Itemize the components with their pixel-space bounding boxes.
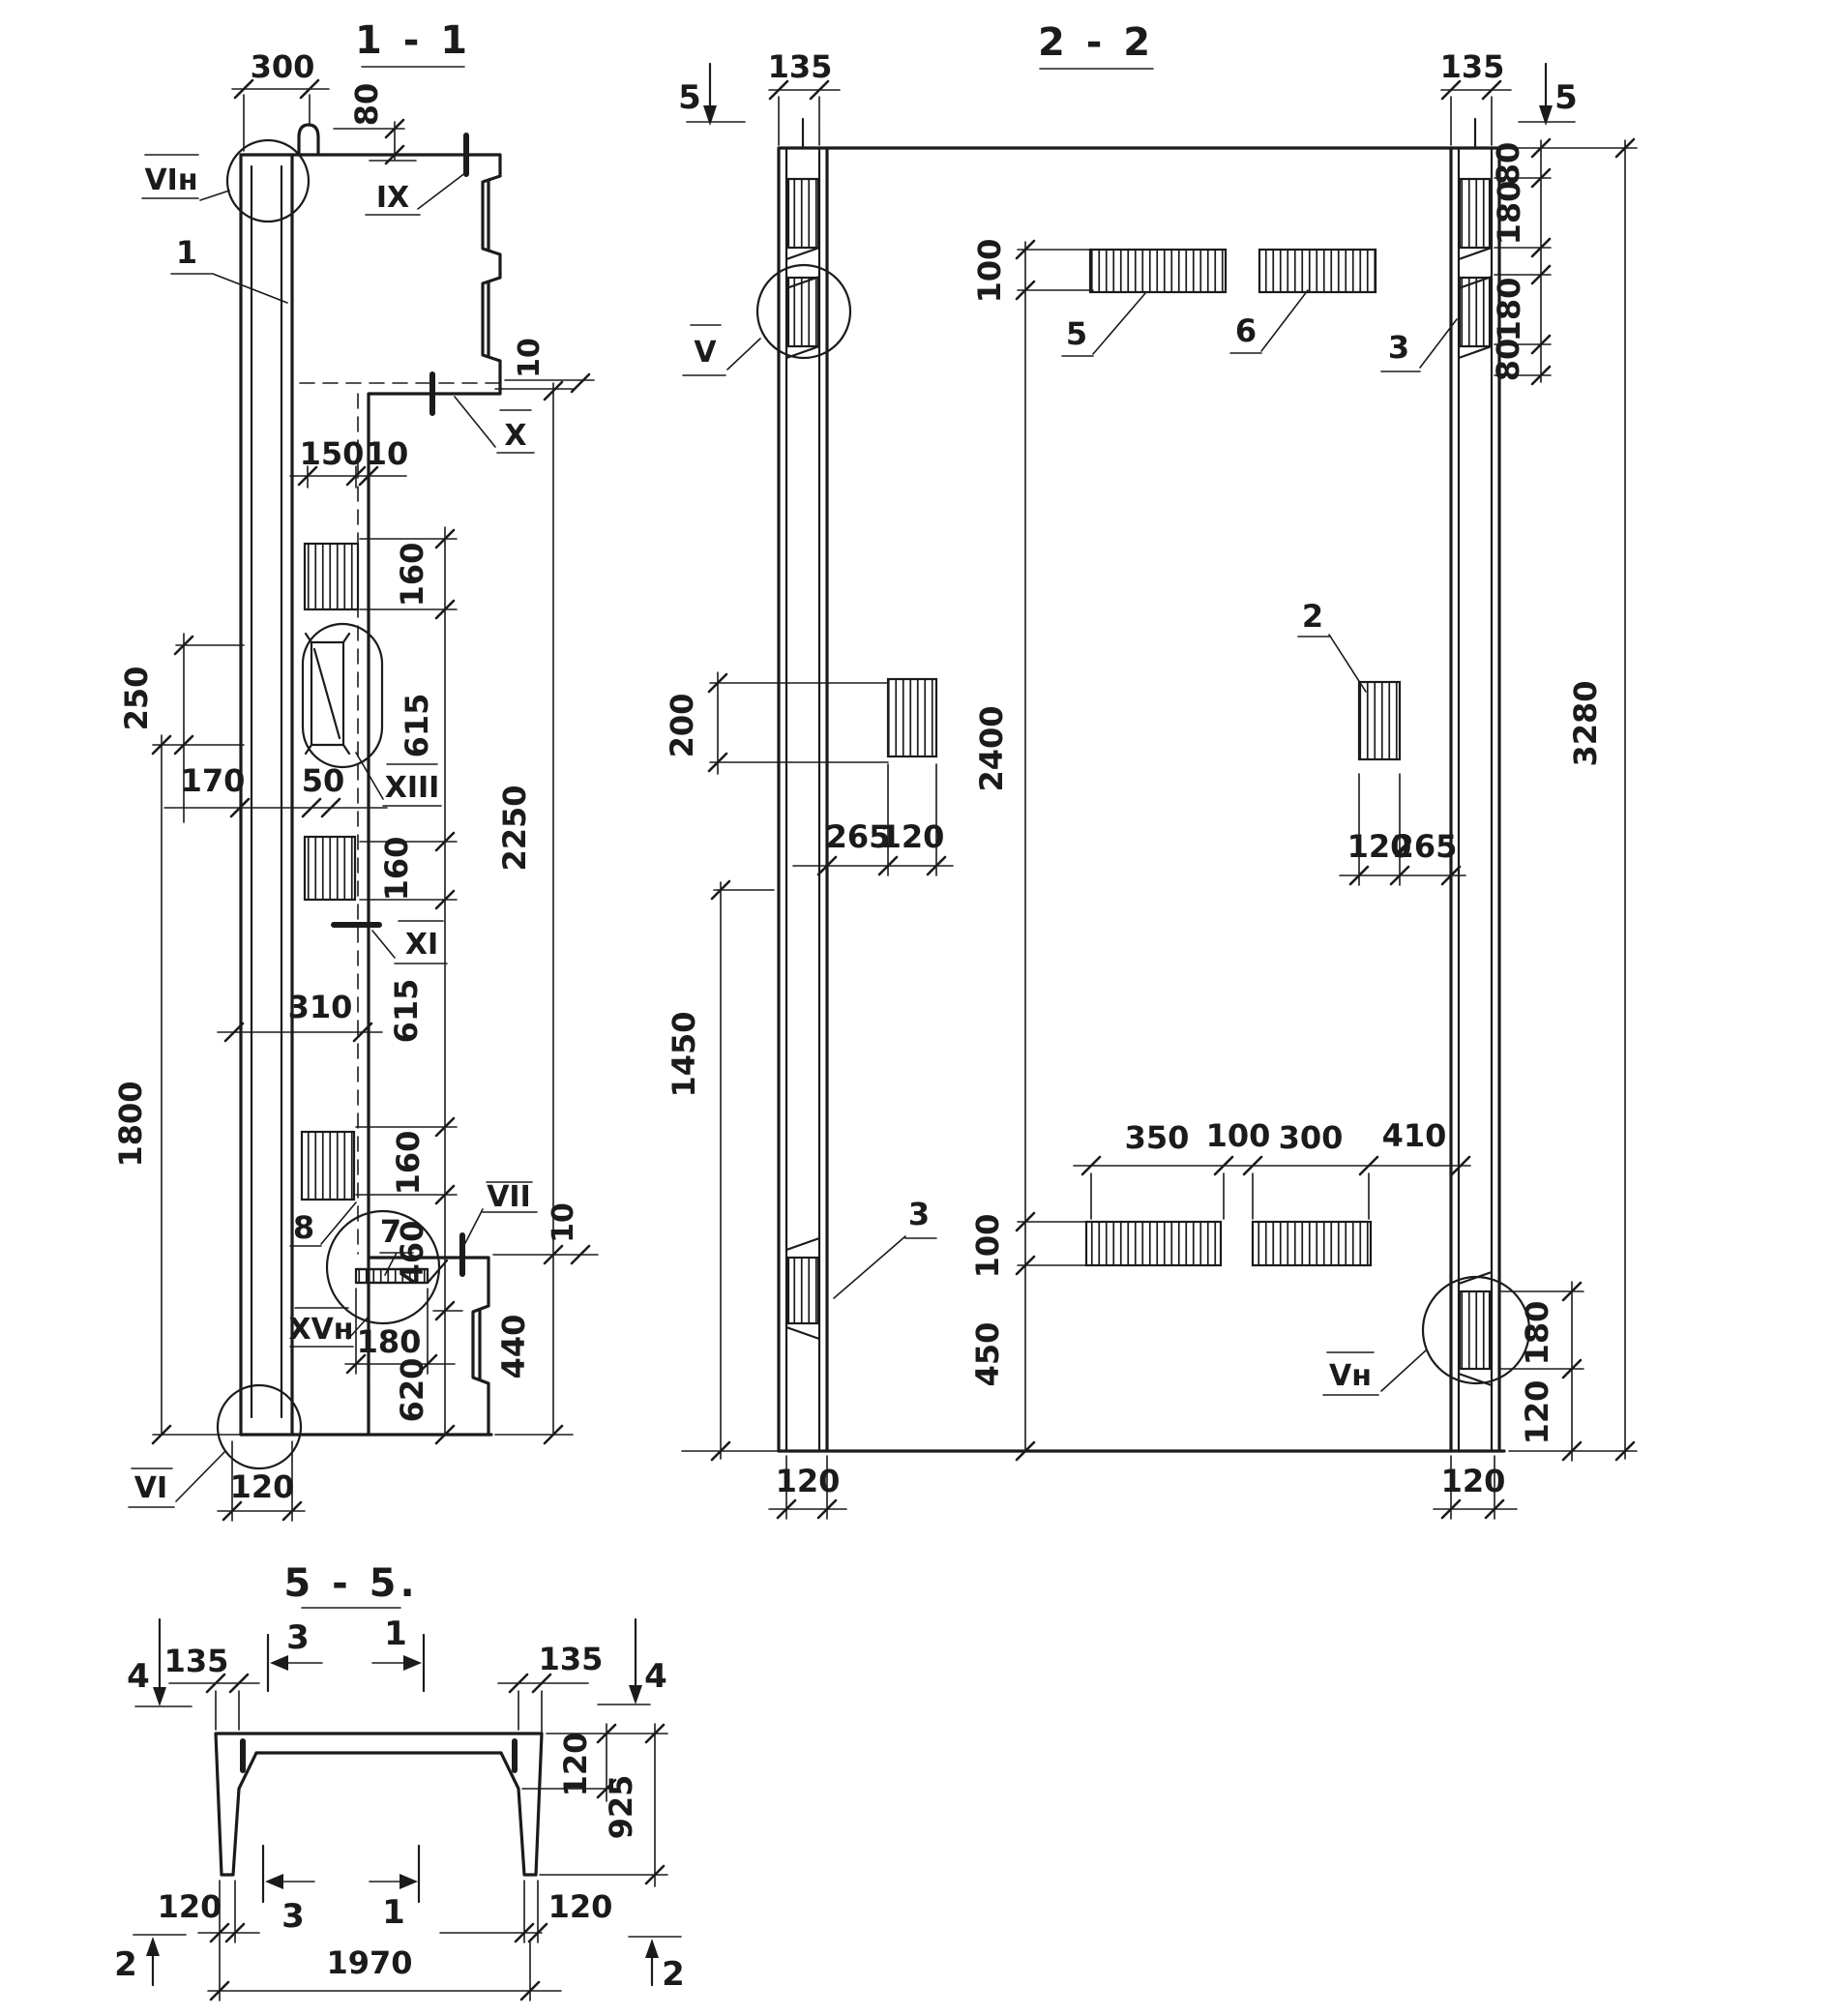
section-2-2: 2 - 2 5 5 135 135 100 80 180 180 80 3280… xyxy=(664,20,1637,1519)
cut-marker-3-bot: 3 xyxy=(281,1897,305,1936)
dim-80a: 80 xyxy=(1490,142,1526,186)
label-XI: XI xyxy=(405,928,438,962)
cut-marker-5-right: 5 xyxy=(1554,78,1578,117)
section-title: 2 - 2 xyxy=(1038,20,1154,65)
dim-200: 200 xyxy=(664,694,700,758)
dim-925: 925 xyxy=(603,1775,639,1840)
dim-160c: 160 xyxy=(390,1131,427,1196)
dim-3280: 3280 xyxy=(1567,680,1604,766)
cut-marker-4-right: 4 xyxy=(644,1657,667,1696)
hatch-rib xyxy=(788,278,818,346)
label-6: 6 xyxy=(1235,312,1257,349)
label-2: 2 xyxy=(1302,598,1323,635)
dim-350: 350 xyxy=(1125,1119,1190,1156)
dim-120-bot-left: 120 xyxy=(158,1888,222,1925)
arrow-right-1t xyxy=(403,1655,422,1671)
section-5-5: 5 - 5. 4 4 135 135 3 1 120 925 3 1 120 1… xyxy=(114,1561,685,2001)
dim-410: 410 xyxy=(1382,1117,1447,1154)
hatch-rib xyxy=(302,1132,354,1200)
detail-circle-VI xyxy=(218,1385,301,1468)
dim-450: 450 xyxy=(969,1322,1006,1387)
label-V: V xyxy=(694,336,717,370)
dim-100-top: 100 xyxy=(971,239,1008,304)
label-3-left: 3 xyxy=(908,1196,930,1232)
cut-marker-1-top: 1 xyxy=(384,1615,407,1653)
hidden-lines xyxy=(300,383,500,1254)
slot-inner xyxy=(306,634,349,754)
dim-1450: 1450 xyxy=(666,1011,702,1097)
label-VI: VI xyxy=(134,1471,167,1505)
label-XIII: XIII xyxy=(385,771,440,805)
hatch-bar-mid-left xyxy=(888,679,936,756)
hatch-rib xyxy=(1460,1291,1490,1369)
label-X: X xyxy=(504,419,526,453)
cut-marker-5-left: 5 xyxy=(678,78,701,117)
dim-135-left: 135 xyxy=(768,48,833,85)
drawing-sheet: 1 - 1 300 80 VIн 1 IX X 10 150 10 160 61… xyxy=(0,0,1835,2016)
arrow-left-3b xyxy=(265,1874,283,1889)
dim-120-br: 120 xyxy=(1519,1380,1555,1445)
arrow-left-3t xyxy=(270,1655,288,1671)
label-5: 5 xyxy=(1066,315,1087,352)
dim-300: 300 xyxy=(251,48,315,85)
dim-160a: 160 xyxy=(394,543,430,608)
arrow-up-2r xyxy=(645,1939,659,1958)
dim-120-bot-right: 120 xyxy=(548,1888,613,1925)
dim-135-right: 135 xyxy=(1440,48,1505,85)
dim-170: 170 xyxy=(181,762,246,799)
label-VII: VII xyxy=(487,1180,531,1214)
dim-615a: 615 xyxy=(399,694,435,758)
section-title: 5 - 5. xyxy=(283,1561,418,1606)
dim-120: 120 xyxy=(230,1468,295,1505)
hatch-bar-bot-right xyxy=(1253,1222,1371,1265)
label-VIn: VIн xyxy=(144,163,197,197)
dim-ticks xyxy=(207,1675,664,2000)
dim-300: 300 xyxy=(1279,1119,1344,1156)
section-1-1: 1 - 1 300 80 VIн 1 IX X 10 150 10 160 61… xyxy=(112,18,598,1521)
dim-180a: 180 xyxy=(1491,181,1527,246)
dim-250: 250 xyxy=(118,667,155,731)
cut-marker-2-right: 2 xyxy=(662,1955,685,1994)
arrow-down-left xyxy=(703,105,717,126)
arrow-down-right xyxy=(1539,105,1553,126)
dim-2250: 2250 xyxy=(496,785,533,871)
label-8: 8 xyxy=(293,1209,314,1246)
label-7: 7 xyxy=(380,1213,401,1250)
hatch-rib xyxy=(788,179,818,248)
dim-50: 50 xyxy=(302,762,345,799)
hatch-rib xyxy=(305,544,358,609)
dim-100-bot: 100 xyxy=(969,1214,1006,1279)
dim-120-left: 120 xyxy=(880,818,945,855)
cut-marker-4-left: 4 xyxy=(127,1657,150,1696)
dim-1800: 1800 xyxy=(112,1081,149,1167)
cut-marker-1-bot: 1 xyxy=(382,1893,405,1932)
arrow-right-1b xyxy=(400,1874,418,1889)
dim-160b: 160 xyxy=(378,837,415,902)
blueprint-svg: 1 - 1 300 80 VIн 1 IX X 10 150 10 160 61… xyxy=(0,0,1835,2016)
dim-615b: 615 xyxy=(388,979,425,1044)
label-3-right: 3 xyxy=(1388,329,1409,366)
hatch-bar-2 xyxy=(1359,682,1400,759)
dim-180: 180 xyxy=(357,1323,422,1360)
label-XVn: XVн xyxy=(288,1313,353,1347)
dim-10-top: 10 xyxy=(513,338,547,378)
dim-120-right: 120 xyxy=(557,1733,594,1797)
hatch-bar-5 xyxy=(1090,250,1226,292)
dim-150: 150 xyxy=(300,435,365,472)
dim-265-right: 265 xyxy=(1393,828,1458,865)
dim-2400: 2400 xyxy=(973,705,1010,791)
hatch-rib xyxy=(1460,179,1490,248)
label-IX: IX xyxy=(376,181,409,215)
dim-135-left: 135 xyxy=(164,1643,229,1679)
label-1: 1 xyxy=(176,234,197,271)
hatch-bar-6 xyxy=(1259,250,1376,292)
dim-120-col-right: 120 xyxy=(1441,1463,1506,1499)
dim-1970: 1970 xyxy=(326,1944,412,1981)
dim-620: 620 xyxy=(394,1358,430,1423)
rebar-lines xyxy=(252,166,281,1417)
dim-120-col-left: 120 xyxy=(776,1463,841,1499)
arrow-down-4l xyxy=(153,1687,166,1706)
rebar-marks xyxy=(243,1741,515,1770)
channel-outline xyxy=(216,1734,542,1875)
arrow-up-2l xyxy=(146,1937,160,1956)
hatch-bar-bot-left xyxy=(1086,1222,1221,1265)
dim-100-c: 100 xyxy=(1206,1117,1271,1154)
cut-marker-2-left: 2 xyxy=(114,1945,137,1984)
dim-80b: 80 xyxy=(1490,339,1526,382)
dim-440: 440 xyxy=(495,1315,532,1379)
dim-310: 310 xyxy=(288,989,353,1025)
dim-10: 10 xyxy=(366,435,409,472)
dim-180-br: 180 xyxy=(1519,1301,1555,1366)
arrow-down-4r xyxy=(629,1685,642,1705)
cut-marker-3-top: 3 xyxy=(286,1618,310,1657)
dim-10-mid: 10 xyxy=(547,1202,580,1243)
dim-80: 80 xyxy=(348,83,385,127)
label-Vn: Vн xyxy=(1329,1359,1372,1393)
dim-135-right: 135 xyxy=(539,1641,604,1677)
dim-180b: 180 xyxy=(1491,278,1527,342)
hatch-rib xyxy=(305,837,355,900)
hatch-rib xyxy=(1460,278,1490,346)
section-title: 1 - 1 xyxy=(355,18,471,63)
hatch-rib xyxy=(788,1258,818,1323)
